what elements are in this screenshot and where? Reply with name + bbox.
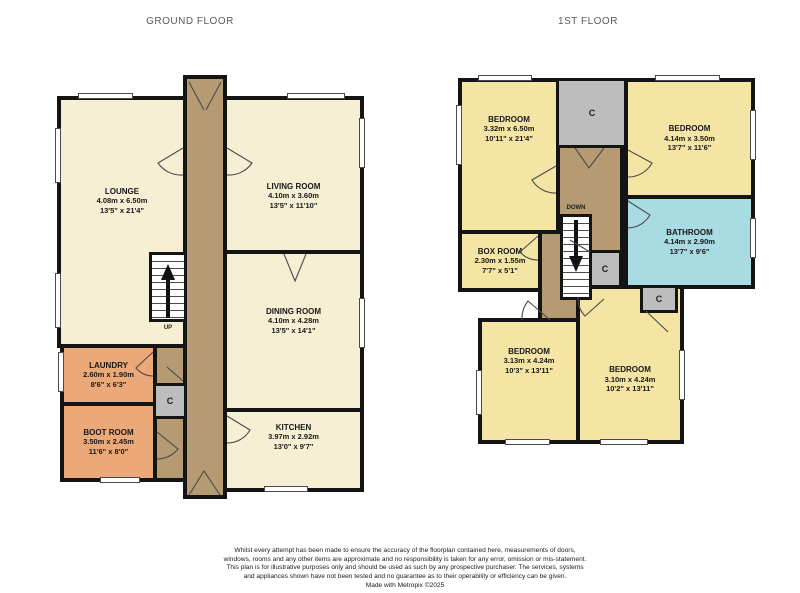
ground-floor-title: GROUND FLOOR bbox=[110, 16, 270, 27]
room-dims-imperial: 8'6" x 6'3" bbox=[83, 380, 134, 390]
window bbox=[359, 118, 365, 168]
room-label: DINING ROOM 4.10m x 4.28m 13'5" x 14'1" bbox=[266, 307, 321, 336]
room-bedroom-2: BEDROOM 4.14m x 3.50m 13'7" x 11'6" bbox=[624, 78, 755, 199]
window bbox=[456, 105, 462, 165]
room-name: BATHROOM bbox=[664, 228, 715, 238]
room-dims-metric: 3.97m x 2.92m bbox=[268, 432, 319, 442]
window bbox=[55, 273, 61, 328]
room-dims-imperial: 13'7" x 9'6" bbox=[664, 247, 715, 257]
closet-label: C bbox=[167, 396, 174, 406]
room-living-room: LIVING ROOM 4.10m x 3.60m 13'5" x 11'10" bbox=[223, 96, 364, 254]
stairs-up-label: UP bbox=[149, 325, 187, 331]
room-dims-metric: 2.30m x 1.55m bbox=[475, 256, 526, 266]
room-label: BOX ROOM 2.30m x 1.55m 7'7" x 5'1" bbox=[475, 247, 526, 276]
hallway-ground bbox=[183, 75, 227, 499]
window bbox=[359, 298, 365, 348]
room-name: BEDROOM bbox=[504, 347, 555, 357]
room-name: KITCHEN bbox=[268, 423, 319, 433]
room-boot-room: BOOT ROOM 3.50m x 2.45m 11'6" x 8'0" bbox=[60, 402, 157, 482]
window bbox=[264, 486, 308, 492]
room-label: LOUNGE 4.08m x 6.50m 13'5" x 21'4" bbox=[97, 187, 148, 216]
closet-ground: C bbox=[153, 383, 187, 419]
room-label: KITCHEN 3.97m x 2.92m 13'0" x 9'7" bbox=[268, 423, 319, 452]
down-arrow-icon bbox=[569, 220, 583, 274]
window bbox=[58, 352, 64, 392]
room-dims-imperial: 13'0" x 9'7" bbox=[268, 442, 319, 452]
closet-first-top: C bbox=[556, 78, 628, 148]
closet-first-bathroom: C bbox=[640, 285, 678, 313]
window bbox=[679, 350, 685, 400]
window bbox=[478, 75, 532, 81]
disclaimer-text: Whilst every attempt has been made to en… bbox=[222, 547, 588, 581]
room-label: BEDROOM 3.13m x 4.24m 10'3" x 13'11" bbox=[504, 347, 555, 376]
window bbox=[750, 110, 756, 160]
room-bedroom-1: BEDROOM 3.32m x 6.50m 10'11" x 21'4" bbox=[458, 78, 560, 234]
closet-label: C bbox=[656, 294, 663, 304]
window bbox=[78, 93, 133, 99]
footer: Whilst every attempt has been made to en… bbox=[222, 547, 588, 591]
room-dims-imperial: 10'3" x 13'11" bbox=[504, 366, 555, 376]
room-name: BEDROOM bbox=[484, 115, 535, 125]
room-dims-imperial: 11'6" x 8'0" bbox=[83, 447, 134, 457]
room-kitchen: KITCHEN 3.97m x 2.92m 13'0" x 9'7" bbox=[223, 408, 364, 492]
room-name: LAUNDRY bbox=[83, 361, 134, 371]
room-name: LIVING ROOM bbox=[267, 182, 321, 192]
room-label: BEDROOM 4.14m x 3.50m 13'7" x 11'6" bbox=[664, 124, 715, 153]
room-name: LOUNGE bbox=[97, 187, 148, 197]
room-dims-metric: 4.08m x 6.50m bbox=[97, 196, 148, 206]
room-dims-metric: 3.32m x 6.50m bbox=[484, 124, 535, 134]
room-name: DINING ROOM bbox=[266, 307, 321, 317]
window bbox=[55, 128, 61, 183]
room-name: BEDROOM bbox=[605, 365, 656, 375]
room-dims-imperial: 7'7" x 5'1" bbox=[475, 266, 526, 276]
room-label: LIVING ROOM 4.10m x 3.60m 13'5" x 11'10" bbox=[267, 182, 321, 211]
room-dims-metric: 4.10m x 3.60m bbox=[267, 191, 321, 201]
room-dims-imperial: 13'5" x 11'10" bbox=[267, 201, 321, 211]
room-label: BEDROOM 3.10m x 4.24m 10'2" x 13'11" bbox=[605, 365, 656, 394]
credit-text: Made with Metropix ©2025 bbox=[222, 582, 588, 591]
room-label: BATHROOM 4.14m x 2.90m 13'7" x 9'6" bbox=[664, 228, 715, 257]
room-dims-metric: 4.10m x 4.28m bbox=[266, 316, 321, 326]
room-dims-imperial: 13'7" x 11'6" bbox=[664, 143, 715, 153]
room-dining-room: DINING ROOM 4.10m x 4.28m 13'5" x 14'1" bbox=[223, 250, 364, 412]
stairs-down-label: DOWN bbox=[552, 205, 600, 211]
room-dims-imperial: 10'2" x 13'11" bbox=[605, 384, 656, 394]
room-dims-imperial: 10'11" x 21'4" bbox=[484, 134, 535, 144]
room-dims-imperial: 13'5" x 21'4" bbox=[97, 206, 148, 216]
closet-label: C bbox=[589, 108, 596, 118]
room-dims-metric: 4.14m x 2.90m bbox=[664, 237, 715, 247]
closet-label: C bbox=[602, 264, 609, 274]
room-name: BEDROOM bbox=[664, 124, 715, 134]
room-box-room: BOX ROOM 2.30m x 1.55m 7'7" x 5'1" bbox=[458, 230, 542, 292]
up-arrow-icon bbox=[161, 264, 175, 318]
room-label: BOOT ROOM 3.50m x 2.45m 11'6" x 8'0" bbox=[83, 428, 134, 457]
window bbox=[505, 439, 550, 445]
window bbox=[600, 439, 648, 445]
room-dims-metric: 3.13m x 4.24m bbox=[504, 356, 555, 366]
window bbox=[476, 370, 482, 415]
closet-first-stairs: C bbox=[588, 250, 622, 288]
room-dims-imperial: 13'5" x 14'1" bbox=[266, 326, 321, 336]
first-floor-title: 1ST FLOOR bbox=[508, 16, 668, 27]
room-label: LAUNDRY 2.60m x 1.90m 8'6" x 6'3" bbox=[83, 361, 134, 390]
window bbox=[287, 93, 345, 99]
room-laundry: LAUNDRY 2.60m x 1.90m 8'6" x 6'3" bbox=[60, 344, 157, 406]
room-dims-metric: 2.60m x 1.90m bbox=[83, 370, 134, 380]
room-dims-metric: 3.10m x 4.24m bbox=[605, 375, 656, 385]
room-dims-metric: 4.14m x 3.50m bbox=[664, 134, 715, 144]
window bbox=[100, 477, 140, 483]
room-name: BOOT ROOM bbox=[83, 428, 134, 438]
room-bathroom: BATHROOM 4.14m x 2.90m 13'7" x 9'6" bbox=[624, 195, 755, 289]
window bbox=[655, 75, 720, 81]
room-label: BEDROOM 3.32m x 6.50m 10'11" x 21'4" bbox=[484, 115, 535, 144]
room-dims-metric: 3.50m x 2.45m bbox=[83, 437, 134, 447]
window bbox=[750, 218, 756, 258]
room-bedroom-3: BEDROOM 3.13m x 4.24m 10'3" x 13'11" bbox=[478, 318, 580, 444]
room-name: BOX ROOM bbox=[475, 247, 526, 257]
